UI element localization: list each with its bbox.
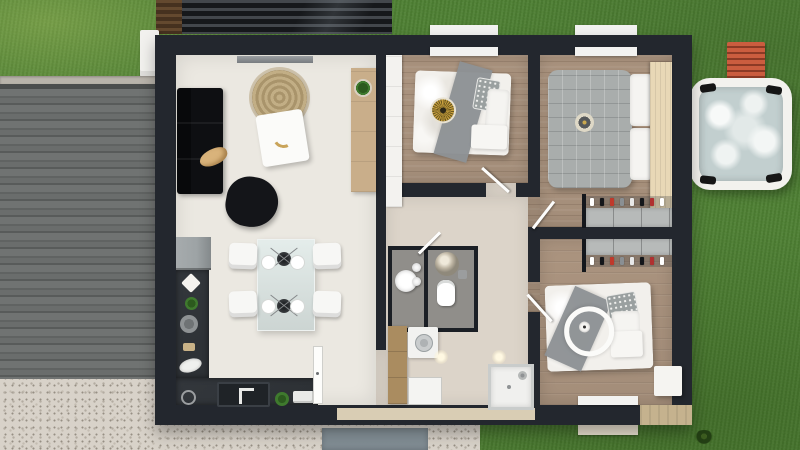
gravel-yard-bottom xyxy=(155,425,480,450)
bedroom3-exterior-threshold xyxy=(578,425,638,435)
pergola-slatted-roof xyxy=(182,0,392,34)
house-walls xyxy=(155,35,692,425)
bedroom2-exterior-window-sill xyxy=(575,25,637,35)
gravel-yard-left xyxy=(0,379,170,450)
hot-tub-water xyxy=(699,87,783,181)
pergola-wood-rail xyxy=(156,0,182,34)
orange-sun-bench xyxy=(727,42,765,80)
hot-tub xyxy=(690,78,792,190)
ribbed-driveway xyxy=(0,84,164,384)
hot-tub-headrest xyxy=(765,173,782,184)
grass-tuft xyxy=(694,430,714,444)
driveway-edge-strip xyxy=(0,76,158,84)
bedroom1-exterior-window-sill xyxy=(430,25,498,35)
floor-plan-scene xyxy=(0,0,800,450)
entry-path xyxy=(322,428,428,450)
hot-tub-headrest xyxy=(700,175,717,185)
